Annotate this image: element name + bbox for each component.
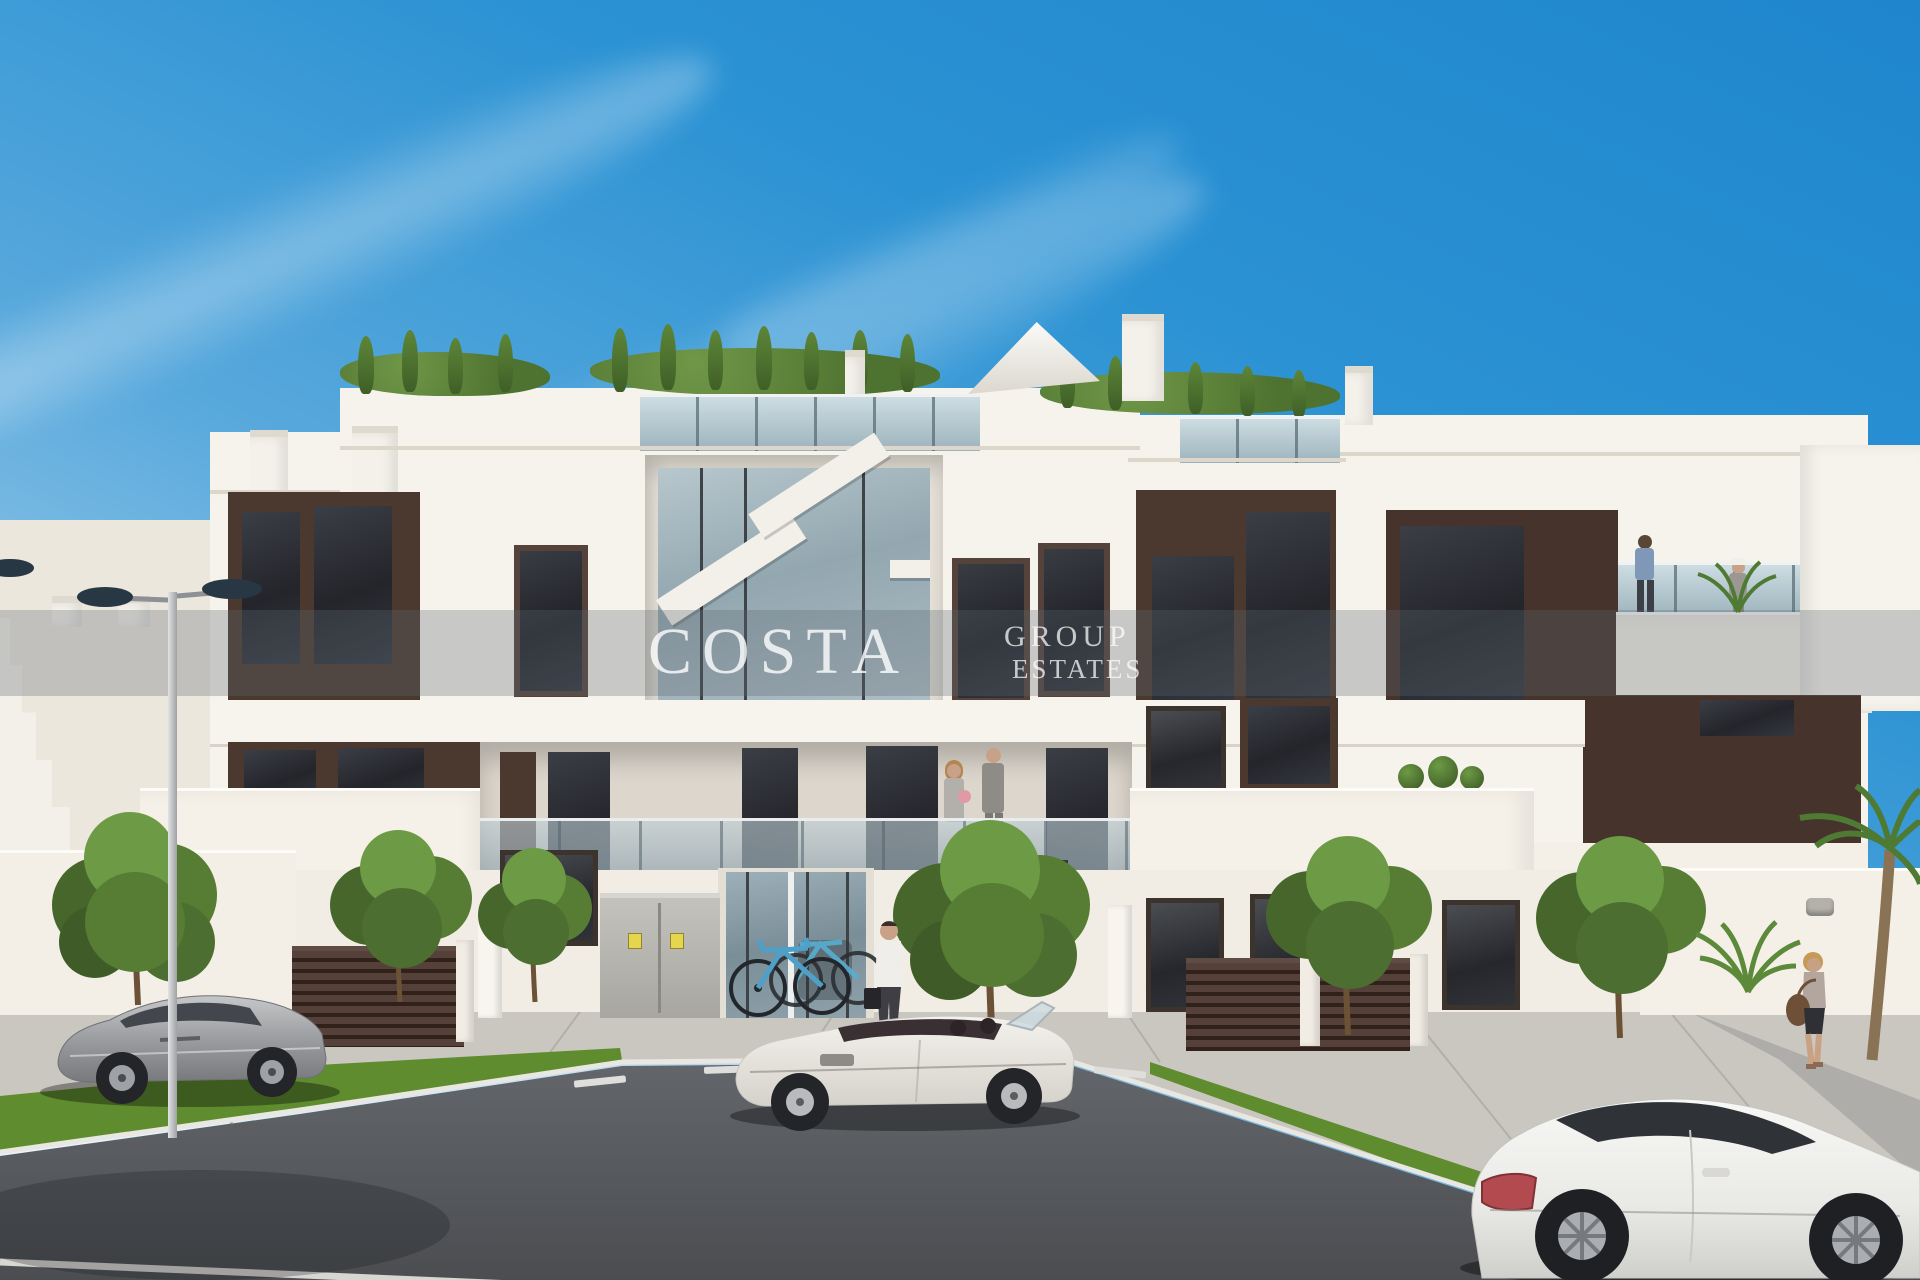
roof-palm	[1698, 562, 1776, 612]
tree	[1536, 836, 1706, 1038]
new-build-apartment-render: COSTA GROUP ESTATES	[0, 0, 1920, 1280]
tree	[52, 812, 217, 1005]
white-coupe-foreground	[1460, 1099, 1920, 1280]
white-convertible	[730, 1002, 1080, 1131]
person-entrance-man	[864, 921, 903, 1035]
tree	[1266, 836, 1432, 1035]
tree	[478, 848, 592, 1002]
silver-sports-car	[40, 996, 340, 1107]
palm-bush	[1696, 922, 1800, 992]
tree	[893, 820, 1090, 1040]
person-sidewalk-woman	[1786, 952, 1826, 1069]
tree	[330, 830, 472, 1002]
street-lamp-partial	[0, 559, 34, 577]
foreground-layer	[0, 0, 1920, 1280]
